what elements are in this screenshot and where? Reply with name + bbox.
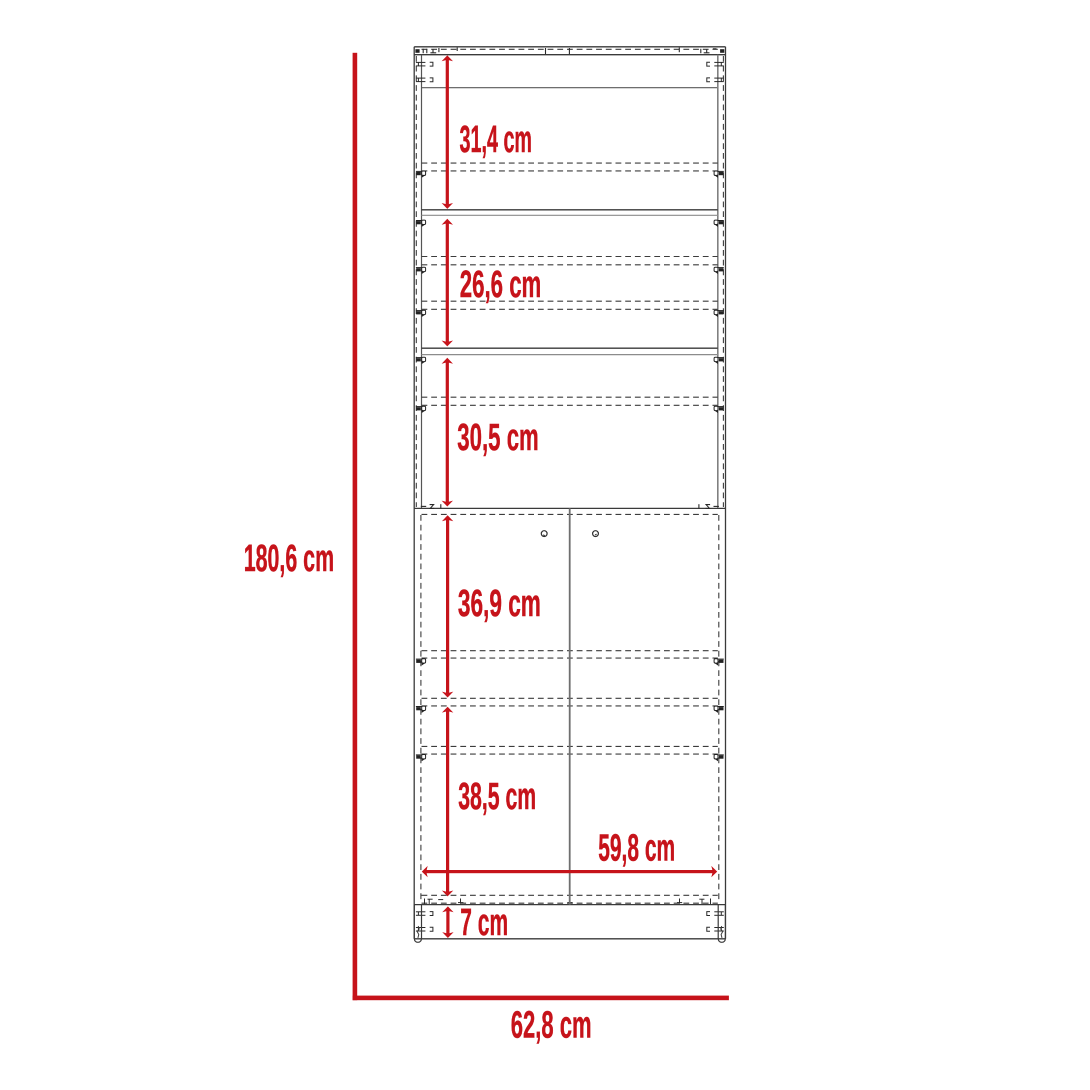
svg-text:31,4 cm: 31,4 cm <box>460 119 533 161</box>
svg-text:38,5 cm: 38,5 cm <box>458 776 536 818</box>
svg-text:180,6 cm: 180,6 cm <box>244 538 334 580</box>
svg-text:7 cm: 7 cm <box>460 902 508 944</box>
svg-text:36,9 cm: 36,9 cm <box>458 583 541 625</box>
svg-text:62,8 cm: 62,8 cm <box>511 1004 592 1046</box>
svg-text:30,5 cm: 30,5 cm <box>457 417 539 459</box>
svg-text:26,6 cm: 26,6 cm <box>460 264 542 306</box>
svg-text:59,8 cm: 59,8 cm <box>598 828 675 870</box>
